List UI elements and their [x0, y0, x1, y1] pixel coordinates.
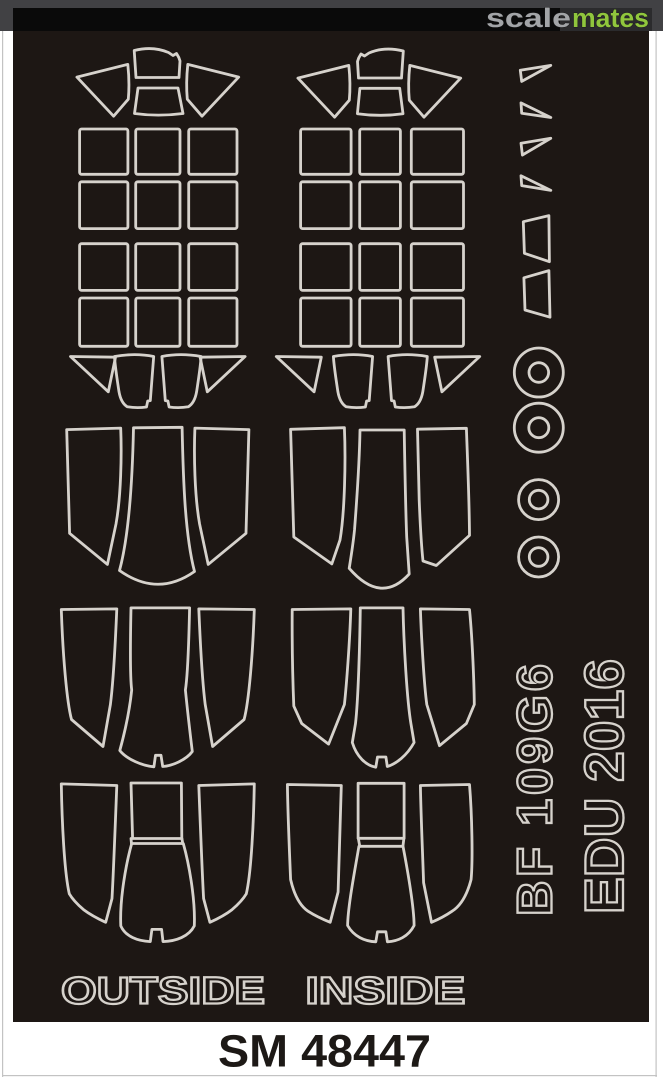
svg-text:EDU 2016: EDU 2016 — [573, 659, 635, 914]
svg-text:mates: mates — [572, 3, 649, 33]
svg-text:OUTSIDE: OUTSIDE — [61, 971, 265, 1013]
svg-text:SM 48447: SM 48447 — [218, 1026, 431, 1077]
svg-text:scale: scale — [486, 3, 571, 33]
svg-text:INSIDE: INSIDE — [305, 971, 465, 1013]
